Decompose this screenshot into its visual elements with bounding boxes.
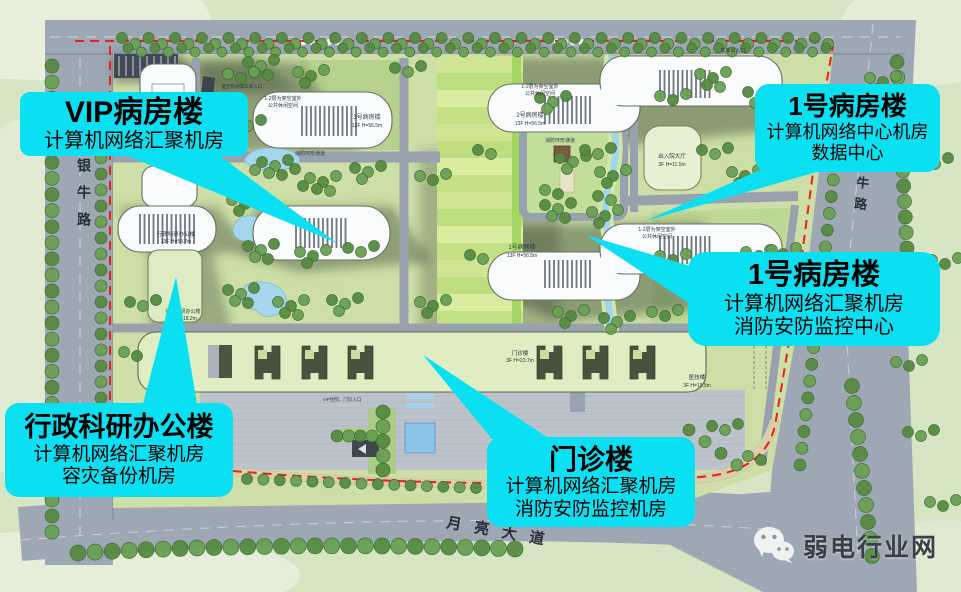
plan-label: 1-2层为架空室外 — [638, 226, 675, 233]
plaza-pool — [405, 423, 435, 453]
plan-label: 1-2层为架空室外 — [264, 95, 301, 102]
plan-label: 车库出入口 — [720, 47, 745, 54]
callout-outpatient: 门诊楼 计算机网络汇聚机房 消防安防监控机房 — [487, 437, 695, 527]
callout-line: 计算机网络中心机房 — [767, 122, 929, 143]
plan-label: 1-2层为架空室外 — [521, 83, 558, 90]
plan-label: 公共休闲空间 — [268, 102, 298, 109]
plan-label: 13F H=59.7m — [161, 239, 191, 245]
plan-label: 行政科研办公楼 — [157, 230, 196, 238]
plan-label: 门诊楼 — [512, 349, 529, 357]
plan-label: 3F H=23.7m — [506, 358, 534, 364]
callout-ward1-north: 1号病房楼 计算机网络中心机房 数据中心 — [755, 84, 940, 172]
plan-label: 13F H=56.5m — [507, 253, 537, 259]
plan-label: 3号病房楼 — [353, 113, 380, 121]
site-plan-screenshot: 1-2层为架空室外公共休闲空间1-2层为架空室外公共休闲空间1-2层为架空室外公… — [0, 0, 961, 592]
callout-title: 行政科研办公楼 — [25, 412, 214, 444]
callout-line: 消防安防监控机房 — [515, 499, 667, 521]
plan-label: 消防环形通道 — [295, 150, 325, 157]
callout-line: 计算机网络汇聚机房 — [44, 130, 224, 154]
callout-line: 计算机网络汇聚机房 — [724, 293, 904, 317]
callout-line: 消防安防监控中心 — [734, 316, 894, 340]
wechat-icon — [752, 524, 796, 568]
callout-title: 1号病房楼 — [748, 258, 880, 292]
watermark-brand: 弱电行业网 — [803, 528, 938, 564]
plan-label: 出入院大厅 — [658, 152, 686, 160]
callout-title: 门诊楼 — [549, 443, 633, 476]
plan-label: 公共休闲空间 — [642, 233, 672, 240]
plan-label: 12F H=56.5m — [352, 123, 382, 129]
callout-line: 容灾备份机房 — [62, 466, 176, 488]
watermark: 弱电行业网 — [752, 524, 938, 568]
road-label-yinniu: 银牛路 — [74, 158, 94, 239]
callout-title: 1号病房楼 — [788, 91, 906, 122]
callout-line: 计算机网络汇聚机房 — [33, 444, 204, 466]
callout-title: VIP病房楼 — [65, 95, 203, 130]
plan-label: 医疗街地库车库入口 — [222, 83, 263, 90]
callout-line: 计算机网络汇聚机房 — [505, 476, 676, 498]
callout-vip-ward: VIP病房楼 计算机网络汇聚机房 — [20, 92, 248, 156]
plan-label: 公共休闲空间 — [525, 90, 555, 97]
plan-label: 医技楼 — [689, 373, 706, 381]
callout-admin-building: 行政科研办公楼 计算机网络汇聚机房 容灾备份机房 — [5, 403, 233, 497]
plan-label: 3F H=19.5m — [683, 383, 711, 389]
plan-label: 3F H=11.5m — [658, 162, 685, 168]
plan-label: 2号病房楼 — [516, 111, 543, 119]
plan-label: VIP住院、门诊入口 — [323, 396, 362, 403]
plan-label: 13F H=56.5m — [515, 121, 545, 127]
callout-line: 数据中心 — [812, 143, 884, 164]
plan-label: 消防环形通道 — [545, 137, 575, 144]
plan-label: 1号病房楼 — [508, 243, 535, 251]
callout-ward1-south: 1号病房楼 计算机网络汇聚机房 消防安防监控中心 — [688, 252, 940, 346]
